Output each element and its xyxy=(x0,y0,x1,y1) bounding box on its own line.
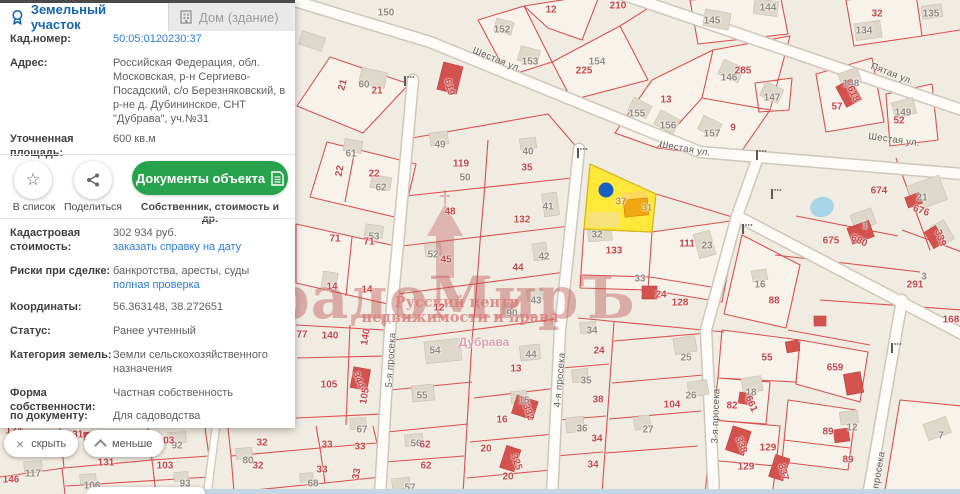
tab-house-label: Дом (здание) xyxy=(199,10,279,25)
share-label: Поделиться xyxy=(62,201,124,213)
tab-land-parcel-label: Земельный участок xyxy=(31,2,158,32)
address-value: Российская Федерация, обл. Московская, р… xyxy=(113,56,287,126)
collapse-panel-button[interactable]: меньше xyxy=(84,430,164,457)
land-category-value: Земли сельскохозяйственного назначения xyxy=(113,348,287,376)
coordinates-value: 56.363148, 38.272651 xyxy=(113,300,287,314)
field-land-category: Категория земель: Земли сельскохозяйстве… xyxy=(10,348,287,376)
field-label: по документу: xyxy=(10,409,113,423)
field-cadastral-cost: Кадастровая стоимость: 302 934 руб. зака… xyxy=(10,226,287,254)
hide-label: скрыть xyxy=(31,438,66,450)
building-icon xyxy=(179,10,193,24)
cost-report-link[interactable]: заказать справку на дату xyxy=(113,240,287,254)
full-check-link[interactable]: полная проверка xyxy=(113,278,287,292)
risks-value: банкротства, аресты, суды xyxy=(113,264,287,278)
selected-parcel-marker xyxy=(599,183,614,198)
field-label: Категория земель: xyxy=(10,348,113,376)
add-to-list-button[interactable]: ☆ xyxy=(14,161,52,199)
status-value: Ранее учтенный xyxy=(113,324,287,338)
bottom-popup-edge xyxy=(87,487,205,494)
field-refined-area: Уточненная площадь: 600 кв.м xyxy=(10,132,287,160)
document-icon xyxy=(271,171,284,186)
area-value: 600 кв.м xyxy=(113,132,287,160)
cost-value: 302 934 руб. xyxy=(113,226,287,240)
cadastral-map-app: ГрадоМирЪ Русский центр недвижимости и п… xyxy=(0,0,960,494)
selected-building xyxy=(623,198,649,217)
object-documents-button[interactable]: Документы объекта xyxy=(132,161,288,195)
field-label: Координаты: xyxy=(10,300,113,314)
field-label: Риски при сделке: xyxy=(10,264,113,292)
share-icon xyxy=(85,172,101,188)
field-label: Адрес: xyxy=(10,56,113,126)
field-coordinates: Координаты: 56.363148, 38.272651 xyxy=(10,300,287,314)
field-label: Кад.номер: xyxy=(10,32,113,46)
object-documents-label: Документы объекта xyxy=(136,171,265,186)
divider xyxy=(0,154,295,155)
field-risks: Риски при сделке: банкротства, аресты, с… xyxy=(10,264,287,292)
field-label: Кадастровая стоимость: xyxy=(10,226,113,254)
star-icon: ☆ xyxy=(25,170,40,190)
add-to-list-label: В список xyxy=(8,201,60,213)
documents-caption: Собственник, стоимость и др. xyxy=(132,201,288,225)
bottom-bar-edge xyxy=(200,489,960,494)
hide-panel-button[interactable]: × скрыть xyxy=(4,430,78,457)
selected-parcel-building-footprint xyxy=(588,212,620,227)
divider xyxy=(0,218,295,219)
watermark-subtitle-2: недвижимости и права xyxy=(361,309,559,326)
tab-bar: Земельный участок Дом (здание) xyxy=(0,0,295,31)
less-label: меньше xyxy=(112,438,152,450)
field-by-document: по документу: Для садоводства xyxy=(10,409,287,423)
share-button[interactable] xyxy=(74,161,112,199)
info-panel: Земельный участок Дом (здание) Кад.номер… xyxy=(0,0,295,428)
field-status: Статус: Ранее учтенный xyxy=(10,324,287,338)
field-label: Уточненная площадь: xyxy=(10,132,113,160)
field-cadastral-number: Кад.номер: 50:05:0120230:37 xyxy=(10,32,287,46)
field-label: Статус: xyxy=(10,324,113,338)
tab-land-parcel[interactable]: Земельный участок xyxy=(0,3,168,31)
chevron-up-icon xyxy=(94,439,107,452)
field-address: Адрес: Российская Федерация, обл. Москов… xyxy=(10,56,287,126)
badge-icon xyxy=(10,9,25,25)
tab-house[interactable]: Дом (здание) xyxy=(168,3,295,31)
close-icon: × xyxy=(16,437,24,451)
by-document-value: Для садоводства xyxy=(113,409,287,423)
cadastral-number-link[interactable]: 50:05:0120230:37 xyxy=(113,33,202,45)
